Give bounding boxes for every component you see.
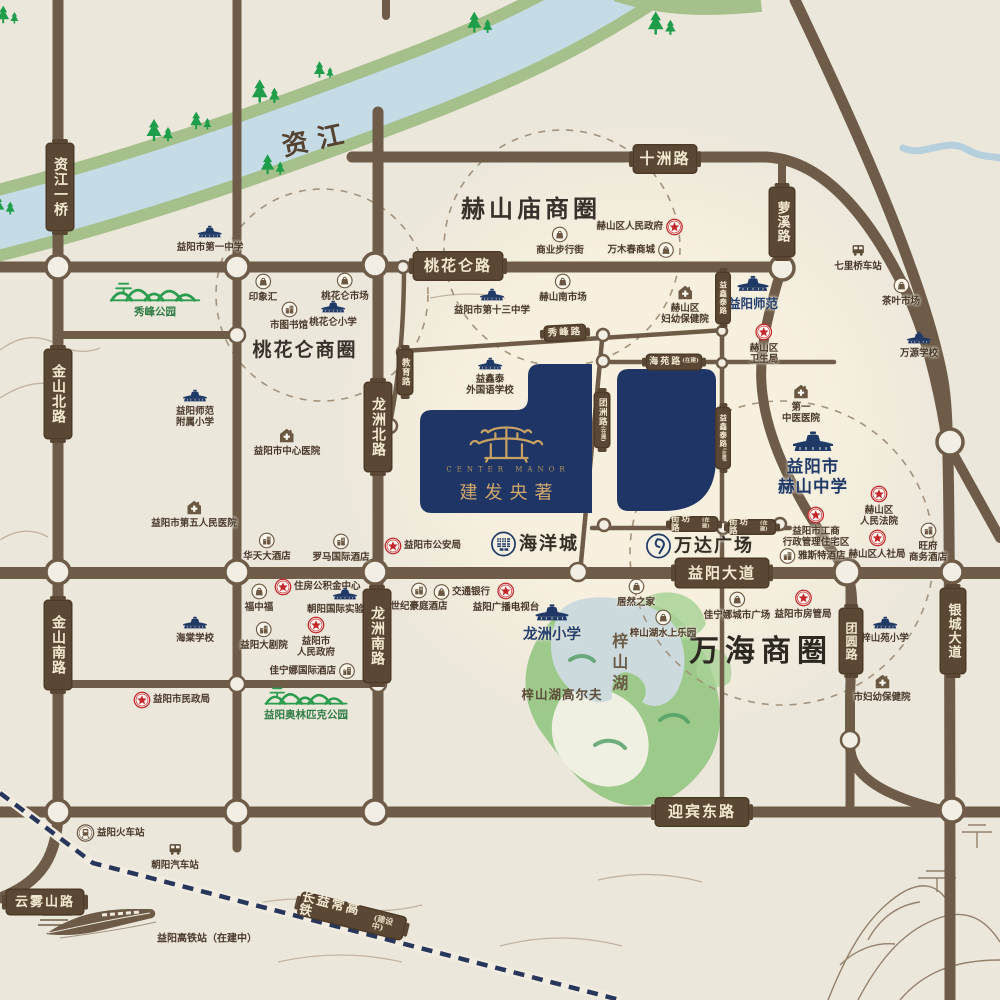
school-icon <box>534 602 570 624</box>
tuanyuan-road: 团圆路 <box>840 609 862 673</box>
hotel-icon <box>332 533 349 550</box>
road-jinshan <box>0 0 58 898</box>
no1-tcm-hospital-label: 第一 中医医院 <box>782 402 820 425</box>
school-icon <box>332 586 358 602</box>
haiyuan-road-text: 海苑路 <box>649 358 682 367</box>
city-fuyou-hospital: 市妇幼保健院 <box>853 673 910 703</box>
roman-intl-hotel-label: 罗马国际酒店 <box>312 552 369 563</box>
city-library-label: 市图书馆 <box>270 320 308 331</box>
hotel-icon <box>258 532 275 549</box>
bag-icon <box>336 272 353 289</box>
longzhou-primary-label: 龙洲小学 <box>523 626 581 643</box>
yiyang-no5-hospital-label: 益阳市第五人民医院 <box>151 518 237 529</box>
jinshan-south-road-text: 金山南路 <box>51 615 65 675</box>
luoxi-road-text: 萝溪路 <box>776 201 789 243</box>
star-icon <box>497 582 515 600</box>
hotel-icon <box>280 301 297 318</box>
longzhou-primary: 龙洲小学 <box>523 602 581 643</box>
road-junction <box>597 329 609 341</box>
gongshang-admin-label: 益阳市工商 行政管理住宅区 <box>783 526 850 549</box>
zijiang-bridge-text: 资江一桥 <box>53 157 67 217</box>
civil-affairs-bureau: 益阳市民政局 <box>133 691 210 709</box>
heshan-south-market-label: 赫山南市场 <box>539 292 587 303</box>
project-name-en: CENTER MANOR <box>442 466 569 474</box>
bag-icon <box>433 584 450 601</box>
xiufeng-road: 秀峰路 <box>545 325 586 341</box>
housing-admin-bureau-label: 益阳市房管局 <box>774 609 831 620</box>
road-junction <box>229 676 245 692</box>
taohualun-primary-label: 桃花仑小学 <box>309 317 357 328</box>
civil-affairs-bureau-label: 益阳市民政局 <box>153 694 210 705</box>
haitang-school: 海棠学校 <box>176 615 214 644</box>
bag-icon <box>654 609 671 626</box>
yiyang-grand-theatre: 益阳大剧院 <box>240 621 288 651</box>
ocean-city: 海洋城 <box>490 531 579 558</box>
heshan-court: 赫山区 人民法院 <box>860 485 898 528</box>
jiefang-road-e-sub: (在建) <box>760 522 775 533</box>
hospital-icon <box>185 499 203 516</box>
taohualun-road-text: 桃花仑路 <box>424 259 492 274</box>
changyichang-hsr-sub: (建设中) <box>371 913 405 936</box>
wangfu-hotel: 旺府 商务酒店 <box>909 522 947 564</box>
yasite-hotel-label: 雅斯特酒店 <box>798 550 846 561</box>
bus-icon <box>166 840 184 858</box>
fuzhongfu: 福中福 <box>245 583 274 613</box>
road-junction <box>363 800 387 824</box>
jiefang-road-w: 街坊路(在建) <box>671 518 717 531</box>
yunwushan-road: 云雾山路 <box>7 890 83 914</box>
yiyang-railway-station: 益阳火车站 <box>76 824 145 843</box>
city-library: 市图书馆 <box>270 301 308 331</box>
zishanhu-waterpark-label: 梓山湖水上乐园 <box>630 628 697 639</box>
yasite-hotel: 雅斯特酒店 <box>779 548 846 565</box>
xiufeng-park: 秀峰公园 <box>108 280 203 319</box>
hotel-icon <box>255 621 272 638</box>
xiufeng-road-text: 秀峰路 <box>548 327 583 338</box>
bus-icon <box>849 241 867 259</box>
jianingna-city-plaza: 佳宁娜城市广场 <box>704 591 771 621</box>
bag-icon <box>554 273 571 290</box>
heshanmiao-circle-name: 赫山庙商圈 <box>461 195 601 223</box>
yunwushan-road-text: 云雾山路 <box>15 896 75 909</box>
hospital-icon <box>676 284 694 301</box>
heshan-fuyou-hospital: 赫山区 妇幼保健院 <box>661 284 709 326</box>
road-junction <box>940 798 964 822</box>
pine-tree-cluster <box>252 79 280 103</box>
yiyang-no1-middle-school-label: 益阳市第一中学 <box>177 242 244 253</box>
longzhou-north-road: 龙洲北路 <box>365 383 391 471</box>
star-icon <box>807 506 825 524</box>
heshan-renshe-bureau: 赫山区人社局 <box>848 529 905 560</box>
taohualun-primary: 桃花仑小学 <box>309 299 357 328</box>
hotel-icon <box>410 582 427 599</box>
wanhai-circle-name: 万海商圈 <box>689 635 833 670</box>
yixintai-road-n: 益鑫泰路 <box>717 273 730 323</box>
ridge-icon <box>256 685 356 707</box>
tuanzhou-road: 团洲路(在建) <box>595 393 609 447</box>
shifan-fushu-primary: 益阳师范 附属小学 <box>176 388 214 429</box>
yiyang-no5-hospital: 益阳市第五人民医院 <box>151 499 237 529</box>
yiyang-center-hospital-label: 益阳市中心医院 <box>254 446 321 457</box>
road-junction <box>46 255 70 279</box>
bag-icon <box>657 242 674 259</box>
school-icon <box>872 615 898 631</box>
yixintai-foreign-school: 益鑫泰 外国语学校 <box>466 356 514 397</box>
jianingna-intl-hotel: 佳宁娜国际酒店 <box>269 663 355 680</box>
ocean-icon <box>490 531 517 558</box>
luoxi-road: 萝溪路 <box>770 188 794 256</box>
yingbin-east-road-text: 迎宾东路 <box>668 805 736 820</box>
zishan-lake-name: 梓山湖 <box>609 633 627 696</box>
zishanhu-golf: 梓山湖高尔夫 <box>521 688 602 702</box>
zishanyuan-primary-label: 梓山苑小学 <box>861 633 909 644</box>
hotel-icon <box>338 663 355 680</box>
pine-tree-cluster <box>314 61 334 78</box>
jianingna-intl-hotel-label: 佳宁娜国际酒店 <box>269 665 336 676</box>
shizhou-road-text: 十洲路 <box>639 152 690 167</box>
road-junction <box>569 563 587 581</box>
longzhou-north-road-text: 龙洲北路 <box>371 397 385 457</box>
yincheng-avenue: 银城大道 <box>941 589 965 673</box>
jinshan-north-road-text: 金山北路 <box>51 364 65 424</box>
school-icon <box>479 287 505 303</box>
hotel-icon <box>919 522 936 539</box>
bag-icon <box>250 583 267 600</box>
heshan-south-market: 赫山南市场 <box>539 273 587 303</box>
bag-icon <box>254 273 271 290</box>
road-junction <box>717 358 727 368</box>
hospital-icon <box>873 673 891 690</box>
school-icon <box>736 274 770 294</box>
yiyang-city-gov-label: 益阳市 人民政府 <box>297 636 335 659</box>
road-junction <box>363 560 387 584</box>
road-junction <box>597 355 609 367</box>
ridge-icon <box>108 280 203 304</box>
ocean-city-label: 海洋城 <box>519 533 579 555</box>
zishanyuan-primary: 梓山苑小学 <box>861 615 909 644</box>
jiefang-road-w-text: 街坊路 <box>671 516 702 533</box>
wanda-icon <box>645 533 672 560</box>
tuanyuan-road-text: 团圆路 <box>845 622 857 661</box>
road-junction <box>225 800 249 824</box>
school-icon <box>906 330 932 346</box>
haiyuan-road: 海苑路(在建) <box>647 355 701 369</box>
yiyang-no13-middle-school-label: 益阳市第十三中学 <box>454 305 530 316</box>
yixintai-road-s-sub: (在建) <box>721 448 726 462</box>
public-security-bureau: 益阳市公安局 <box>384 537 461 555</box>
heshan-renshe-bureau-label: 赫山区人社局 <box>848 549 905 560</box>
school-icon <box>320 299 346 315</box>
road-junction <box>225 255 249 279</box>
yiyang-avenue: 益阳大道 <box>676 559 768 587</box>
star-icon <box>665 218 683 236</box>
project-name-en-text: CENTER MANOR <box>446 466 569 474</box>
yincheng-avenue-text: 银城大道 <box>947 603 960 659</box>
wanmuchun-mall: 万木春商城 <box>607 242 674 259</box>
jianingna-city-plaza-label: 佳宁娜城市广场 <box>704 610 771 621</box>
bag-icon <box>728 591 745 608</box>
yingbin-east-road: 迎宾东路 <box>656 799 748 826</box>
mountain-sketch <box>828 825 1000 1000</box>
jiefang-road-w-sub: (在建) <box>702 519 717 530</box>
jiefang-road-e-text: 街坊路 <box>729 519 760 536</box>
heshan-court-label: 赫山区 人民法院 <box>860 505 898 528</box>
bag-icon <box>892 277 909 294</box>
haitang-school-label: 海棠学校 <box>176 633 214 644</box>
star-icon <box>307 616 325 634</box>
no1-tcm-hospital: 第一 中医医院 <box>782 383 820 425</box>
chaoyang-bus-station: 朝阳汽车站 <box>151 840 199 871</box>
longzhou-south-road-text: 龙洲南路 <box>370 606 384 666</box>
yixintai-foreign-school-label: 益鑫泰 外国语学校 <box>466 374 514 397</box>
yiyang-avenue-text: 益阳大道 <box>688 566 756 581</box>
star-icon <box>870 485 888 503</box>
school-icon <box>790 429 836 455</box>
star-icon <box>274 578 292 596</box>
road-junction <box>229 327 245 343</box>
heshan-middle-school-label: 益阳市 赫山中学 <box>778 457 848 497</box>
tea-market: 茶叶市场 <box>882 277 920 307</box>
star-icon <box>133 691 151 709</box>
tea-market-label: 茶叶市场 <box>882 296 920 307</box>
taohualun-market: 桃花仑市场 <box>321 272 369 302</box>
school-icon <box>182 615 208 631</box>
heshan-middle-school: 益阳市 赫山中学 <box>778 429 848 497</box>
school-icon <box>477 356 503 372</box>
trainstation-icon <box>76 824 95 843</box>
wanda-plaza: 万达广场 <box>645 533 754 560</box>
yiyang-grand-theatre-label: 益阳大剧院 <box>240 640 288 651</box>
road-junction <box>397 261 409 273</box>
heshan-district-gov: 赫山区人民政府 <box>596 218 683 236</box>
zishanhu-waterpark: 梓山湖水上乐园 <box>630 609 697 639</box>
jiaoyu-road-text: 教育路 <box>401 358 410 387</box>
jinshan-north-road: 金山北路 <box>45 350 71 438</box>
stream <box>903 145 1000 162</box>
tuanzhou-road-sub: (在建) <box>599 426 604 442</box>
star-icon <box>794 589 812 607</box>
star-icon <box>384 537 402 555</box>
hsr-station-note: 益阳高铁站（在建中） <box>157 933 257 945</box>
city-fuyou-hospital-label: 市妇幼保健院 <box>853 692 910 703</box>
star-icon <box>868 529 886 547</box>
taohualun-circle-name: 桃花仑商圈 <box>252 340 357 362</box>
huatian-hotel: 华天大酒店 <box>243 532 291 562</box>
road-junction <box>841 731 859 749</box>
road-junction <box>598 519 610 531</box>
hotel-icon <box>779 548 796 565</box>
longzhou-south-road: 龙洲南路 <box>364 590 390 682</box>
project-logo: CENTER MANOR 建发央著 <box>442 420 569 505</box>
zijiang-bridge: 资江一桥 <box>47 144 73 230</box>
roman-intl-hotel: 罗马国际酒店 <box>312 533 369 563</box>
wanmuchun-mall-label: 万木春商城 <box>607 244 655 255</box>
pine-tree-cluster <box>0 6 18 24</box>
yiyang-city-gov: 益阳市 人民政府 <box>297 616 335 659</box>
yiyang-no13-middle-school: 益阳市第十三中学 <box>454 287 530 316</box>
heshan-fuyou-hospital-label: 赫山区 妇幼保健院 <box>661 303 709 326</box>
yiyang-no1-middle-school: 益阳市第一中学 <box>177 224 244 253</box>
yiyang-shifan-label: 益阳师范 <box>728 296 778 311</box>
road-junction <box>225 560 249 584</box>
hospital-icon <box>278 427 296 444</box>
haiyuan-road-sub: (在建) <box>682 359 698 365</box>
shifan-fushu-primary-label: 益阳师范 附属小学 <box>176 406 214 429</box>
road-junction <box>46 800 70 824</box>
heshan-health-bureau-label: 赫山区 卫生局 <box>750 343 779 366</box>
yixintai-road-s-text: 益鑫泰路 <box>719 414 727 448</box>
jinshan-south-road: 金山南路 <box>45 601 71 689</box>
wangfu-hotel-label: 旺府 商务酒店 <box>909 541 947 564</box>
project-name-cn: 建发央著 <box>452 479 559 505</box>
xiufeng-park-label: 秀峰公园 <box>134 306 176 319</box>
yiyang-olympic-park-label: 益阳奥林匹克公园 <box>264 709 348 722</box>
yiyang-center-hospital: 益阳市中心医院 <box>254 427 321 457</box>
heshan-health-bureau: 赫山区 卫生局 <box>750 323 779 366</box>
road-junction <box>46 560 70 584</box>
tuanzhou-road-text: 团洲路 <box>598 398 607 427</box>
qiliqiao-station: 七里桥车站 <box>834 241 882 272</box>
taohualun-road: 桃花仑路 <box>414 253 502 280</box>
housing-admin-bureau: 益阳市房管局 <box>774 589 831 620</box>
road-junction <box>941 561 963 583</box>
gongshang-admin: 益阳市工商 行政管理住宅区 <box>783 506 850 549</box>
road-diagonal-se <box>949 446 1000 538</box>
yiyang-shifan: 益阳师范 <box>728 274 778 311</box>
pine-tree-cluster <box>648 11 676 35</box>
jiaoyu-road: 教育路 <box>398 350 412 394</box>
huatian-hotel-label: 华天大酒店 <box>243 551 291 562</box>
road-junction <box>937 429 963 455</box>
wanda-plaza-label: 万达广场 <box>674 535 754 557</box>
yiyang-olympic-park: 益阳奥林匹克公园 <box>256 685 356 722</box>
jiefang-road-e: 街坊路(在建) <box>729 521 775 534</box>
chaoyang-bus-station-label: 朝阳汽车站 <box>151 860 199 871</box>
school-icon <box>182 388 208 404</box>
bag-icon <box>551 226 568 243</box>
bag-icon <box>627 578 644 595</box>
gate-logo-icon <box>458 420 554 464</box>
school-icon <box>197 224 223 240</box>
wanyuan-school-label: 万源学校 <box>900 348 938 359</box>
public-security-bureau-label: 益阳市公安局 <box>404 540 461 551</box>
hospital-icon <box>792 383 810 400</box>
yixintai-road-n-text: 益鑫泰路 <box>719 281 727 315</box>
star-icon <box>755 323 773 341</box>
location-map: CENTER MANOR 建发央著 十洲路桃花仑路益阳大道迎宾东路云雾山路秀峰路… <box>0 0 1000 1000</box>
juran-home-label: 居然之家 <box>617 597 655 608</box>
shizhou-road: 十洲路 <box>634 146 696 173</box>
shiji-haoting-hotel-label: 世纪豪庭酒店 <box>390 601 447 612</box>
fuzhongfu-label: 福中福 <box>245 602 274 613</box>
wanyuan-school: 万源学校 <box>900 330 938 359</box>
yinxianghui-mall: 印象汇 <box>249 273 278 303</box>
heshan-district-gov-label: 赫山区人民政府 <box>596 221 663 232</box>
qiliqiao-station-label: 七里桥车站 <box>834 261 882 272</box>
yixintai-road-s: 益鑫泰路(在建) <box>717 408 730 468</box>
juran-home: 居然之家 <box>617 578 655 608</box>
shangye-buxingjie: 商业步行街 <box>536 226 584 256</box>
shangye-buxingjie-label: 商业步行街 <box>536 245 584 256</box>
yiyang-railway-station-label: 益阳火车站 <box>97 827 145 838</box>
